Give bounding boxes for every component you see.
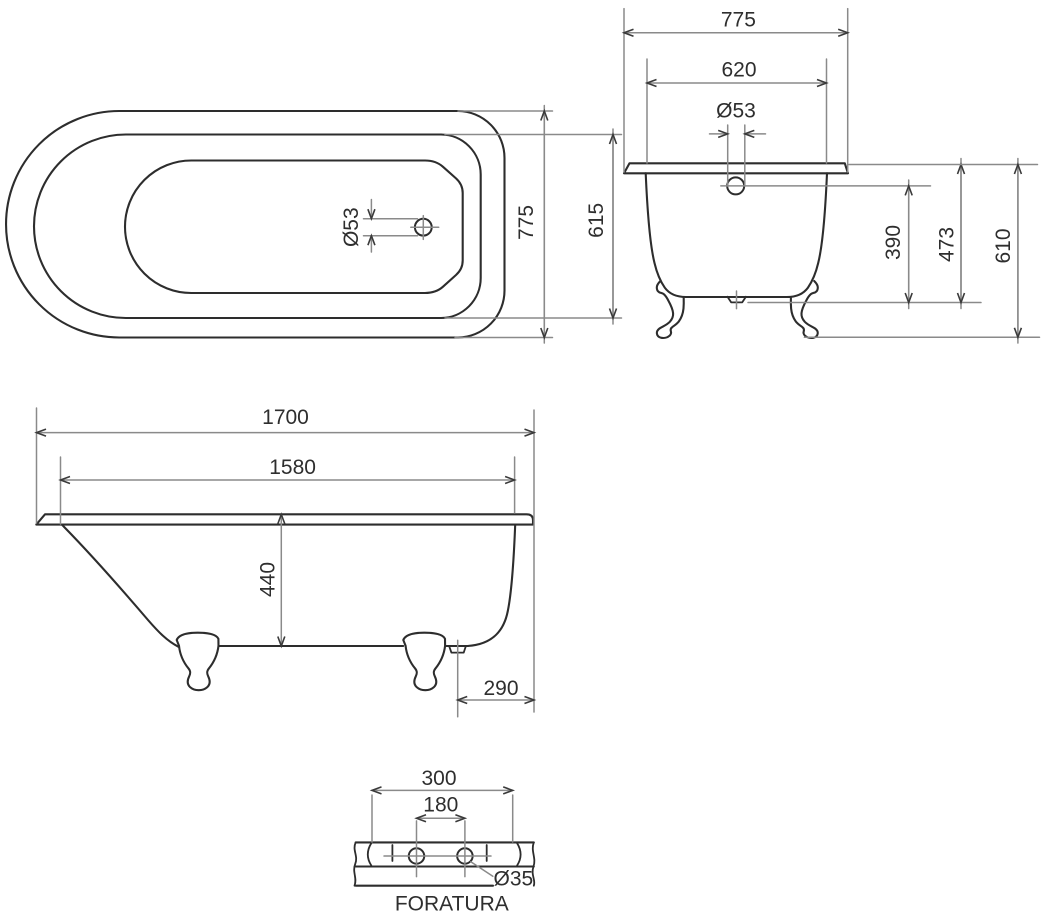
- svg-text:1700: 1700: [262, 406, 309, 429]
- svg-text:Ø53: Ø53: [340, 207, 363, 247]
- svg-text:440: 440: [257, 562, 280, 597]
- svg-text:775: 775: [721, 8, 756, 31]
- svg-text:390: 390: [882, 225, 905, 260]
- svg-text:180: 180: [423, 794, 458, 817]
- svg-text:300: 300: [421, 767, 456, 790]
- svg-text:1580: 1580: [269, 456, 316, 479]
- svg-text:620: 620: [721, 58, 756, 81]
- svg-text:Ø53: Ø53: [716, 99, 756, 122]
- svg-text:473: 473: [936, 227, 959, 262]
- svg-text:615: 615: [585, 203, 608, 238]
- svg-text:610: 610: [992, 228, 1015, 263]
- svg-text:Ø35: Ø35: [494, 868, 534, 891]
- svg-text:775: 775: [515, 205, 538, 240]
- svg-text:290: 290: [483, 677, 518, 700]
- svg-text:FORATURA: FORATURA: [395, 893, 509, 916]
